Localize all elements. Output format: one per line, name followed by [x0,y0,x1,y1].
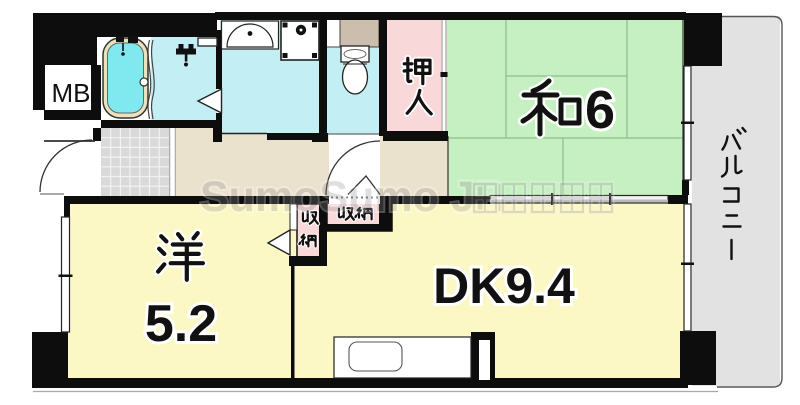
svg-text:5.2: 5.2 [145,295,217,353]
svg-text:SumoSumo JR: SumoSumo JR [200,173,506,221]
svg-text:DK9.4: DK9.4 [433,258,575,314]
svg-text:6: 6 [585,80,615,140]
svg-text:MB: MB [52,78,91,108]
